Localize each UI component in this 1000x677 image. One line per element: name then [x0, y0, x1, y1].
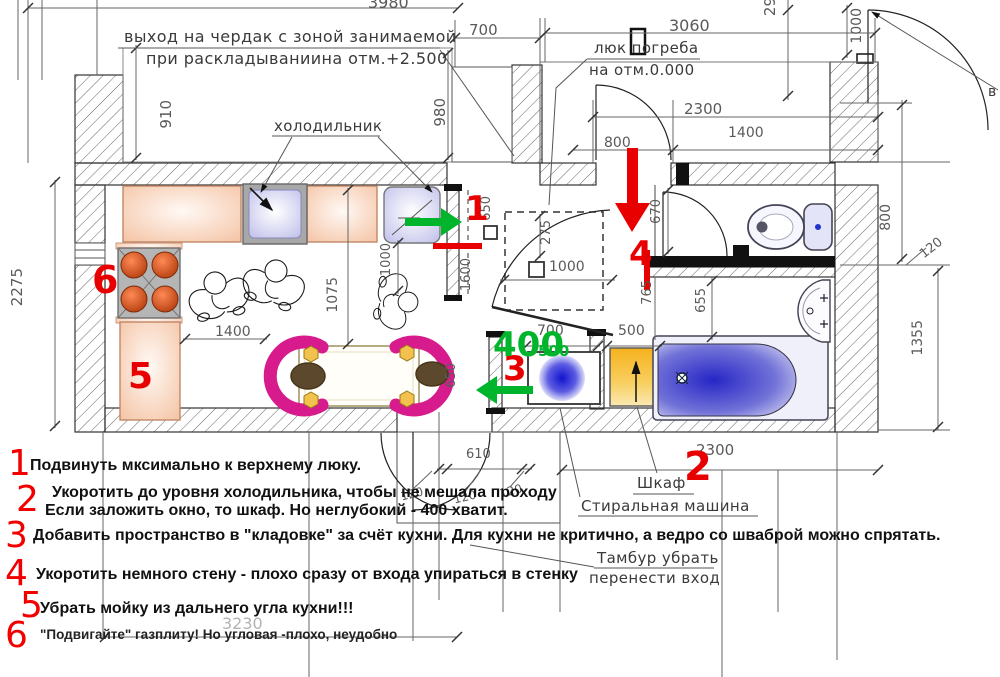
cellar-hatch-label-line1: люк погреба — [594, 39, 699, 57]
fridge — [384, 187, 440, 243]
dim-980: 980 — [431, 98, 449, 127]
gas-stove — [116, 243, 182, 323]
dim-650-lower: 650 — [444, 363, 459, 388]
dim-910: 910 — [157, 100, 175, 129]
note-4-text: Укоротить немного стену - плохо сразу от… — [36, 566, 578, 584]
dim-610: 610 — [466, 447, 491, 462]
dim-1600: 1600 — [459, 258, 474, 291]
dim-765: 765 — [640, 280, 655, 305]
dim-1000-topright: 1000 — [849, 8, 865, 44]
red-arrow-down — [615, 148, 650, 232]
dim-29-cut: 29 — [761, 0, 779, 16]
red-underline — [433, 243, 482, 249]
dim-1355: 1355 — [910, 320, 926, 356]
dim-1000-kitchen: 1000 — [379, 243, 394, 276]
note-3-number: 3 — [5, 518, 28, 554]
dim-3980: 3980 — [368, 0, 409, 12]
entrance-note-label: перенести вход — [589, 569, 720, 587]
wardrobe-label: Шкаф — [637, 474, 686, 492]
note-2-text-line2: Если заложить окно, то шкаф. Но неглубок… — [45, 502, 508, 520]
note-5-text: Убрать мойку из дальнего угла кухни!!! — [40, 600, 354, 618]
note-2-text-line1: Укоротить до уровня холодильника, чтобы … — [52, 484, 557, 502]
note-3-text: Добавить пространство в "кладовке" за сч… — [33, 527, 940, 545]
plan-marker-5: 5 — [128, 359, 153, 395]
dim-1075: 1075 — [325, 277, 341, 313]
plan-marker-6: 6 — [92, 261, 118, 299]
note-1-number: 1 — [8, 446, 31, 482]
tambour-note-label: Тамбур убрать — [597, 549, 719, 567]
chair-left — [270, 342, 325, 410]
dim-800-hall: 800 — [604, 135, 631, 151]
floor-plan-page: 3980 700 3060 29 1000 2300 1400 800 910 … — [0, 0, 1000, 677]
dim-1400-kitchen: 1400 — [215, 324, 251, 340]
person-3 — [372, 272, 420, 331]
dim-1400-hall: 1400 — [728, 125, 764, 141]
right-edge-cut-label: в — [988, 84, 997, 100]
attic-label-line2: при раскладываниина отм.+2.500 — [146, 49, 448, 68]
entry-door-top-right — [868, 10, 988, 130]
plan-marker-1: 1 — [465, 192, 489, 226]
dim-3060: 3060 — [669, 16, 710, 35]
dim-700-top: 700 — [469, 21, 498, 39]
person-2 — [239, 254, 309, 314]
note-1-text: Подвинуть мксимально к верхнему люку. — [30, 457, 361, 475]
dim-670: 670 — [649, 199, 664, 224]
wash-basin — [798, 280, 830, 342]
fridge-label: холодильник — [274, 117, 382, 135]
dim-2300-hall: 2300 — [684, 100, 722, 118]
kitchen-sink — [243, 184, 307, 244]
green-500-marker: 500 — [538, 344, 569, 359]
toilet — [748, 204, 832, 250]
attic-label-line1: выход на чердак с зоной занимаемой — [124, 27, 457, 46]
washing-machine-label: Стиральная машина — [581, 497, 750, 515]
note-2-number: 2 — [16, 482, 39, 518]
structure-lines — [123, 48, 878, 523]
dim-1000-cellar: 1000 — [549, 259, 585, 275]
plan-marker-2: 2 — [684, 447, 712, 487]
note-6-text: "Подвигайте" газплиту! Но угловая -плохо… — [40, 627, 397, 642]
dim-655: 655 — [694, 288, 709, 313]
dim-2275: 2275 — [8, 268, 26, 306]
dim-500-wardrobe: 500 — [618, 323, 645, 339]
dim-800-right: 800 — [878, 204, 894, 231]
note-6-number: 6 — [5, 618, 28, 654]
plan-marker-4: 4 — [629, 237, 653, 271]
cellar-hatch-label-line2: на отм.0.000 — [589, 61, 695, 79]
toilet-door — [663, 192, 727, 256]
bathtub — [653, 336, 828, 420]
dim-275: 275 — [539, 220, 554, 245]
